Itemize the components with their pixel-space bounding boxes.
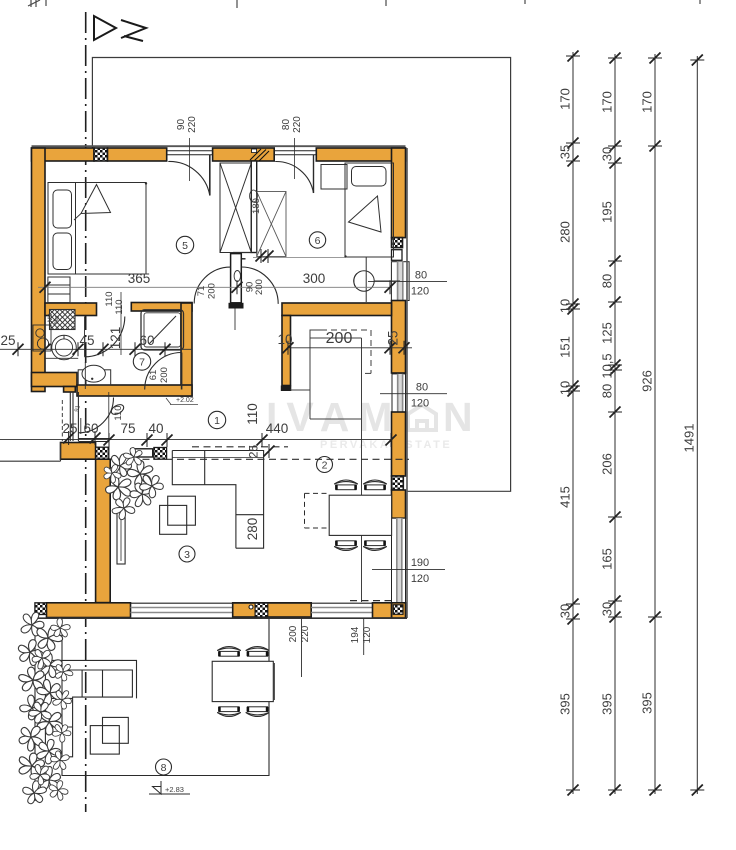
svg-text:25: 25 <box>0 333 15 348</box>
svg-text:395: 395 <box>639 692 654 714</box>
svg-text:80: 80 <box>599 274 614 288</box>
svg-text:195: 195 <box>599 201 614 223</box>
svg-text:80: 80 <box>415 270 427 282</box>
svg-text:206: 206 <box>599 453 614 475</box>
svg-text:10,5: 10,5 <box>599 353 614 378</box>
svg-text:120: 120 <box>411 573 429 585</box>
svg-text:10: 10 <box>557 299 572 313</box>
svg-text:200: 200 <box>326 330 353 347</box>
svg-text:80: 80 <box>599 384 614 398</box>
svg-text:80: 80 <box>281 119 292 131</box>
svg-text:1491: 1491 <box>681 424 696 453</box>
svg-text:280: 280 <box>557 221 572 243</box>
svg-text:440: 440 <box>266 421 289 436</box>
svg-text:10: 10 <box>277 332 292 347</box>
svg-text:220: 220 <box>187 116 198 133</box>
svg-text:110: 110 <box>113 405 124 420</box>
svg-text:90: 90 <box>176 119 187 131</box>
svg-text:75: 75 <box>120 421 135 436</box>
svg-text:170: 170 <box>557 88 572 110</box>
svg-text:120: 120 <box>411 398 429 410</box>
svg-text:N: N <box>443 394 473 440</box>
svg-text:120: 120 <box>362 626 373 643</box>
svg-text:1: 1 <box>214 415 220 427</box>
svg-text:170: 170 <box>599 91 614 113</box>
svg-text:200: 200 <box>254 279 265 295</box>
svg-text:395: 395 <box>599 693 614 715</box>
svg-text:45: 45 <box>79 333 94 348</box>
svg-text:300: 300 <box>303 271 326 286</box>
svg-text:40: 40 <box>148 421 163 436</box>
svg-text:61: 61 <box>148 370 159 381</box>
svg-text:926: 926 <box>639 370 654 392</box>
svg-text:71: 71 <box>196 286 207 297</box>
svg-text:+2.83: +2.83 <box>165 785 184 794</box>
svg-text:395: 395 <box>557 693 572 715</box>
svg-text:280: 280 <box>245 518 260 541</box>
svg-text:170: 170 <box>639 91 654 113</box>
svg-text:80: 80 <box>416 382 428 394</box>
svg-text:3: 3 <box>184 549 190 561</box>
svg-text:200: 200 <box>207 283 218 299</box>
svg-text:60: 60 <box>83 421 98 436</box>
svg-text:+2.02: +2.02 <box>176 397 194 404</box>
svg-text:125: 125 <box>599 322 614 344</box>
svg-text:30: 30 <box>599 147 614 161</box>
svg-text:151: 151 <box>557 336 572 358</box>
svg-text:220: 220 <box>300 625 311 642</box>
svg-text:6: 6 <box>315 235 321 247</box>
svg-text:110: 110 <box>245 403 260 425</box>
svg-text:7: 7 <box>139 357 145 369</box>
svg-text:415: 415 <box>557 486 572 508</box>
svg-text:110: 110 <box>114 299 125 314</box>
svg-text:194: 194 <box>350 626 361 643</box>
svg-text:365: 365 <box>128 271 151 286</box>
svg-text:200: 200 <box>288 625 299 642</box>
svg-text:190: 190 <box>411 557 429 569</box>
svg-text:30: 30 <box>599 602 614 616</box>
svg-text:165: 165 <box>599 548 614 570</box>
svg-text:2: 2 <box>322 459 328 471</box>
svg-text:5: 5 <box>182 240 188 252</box>
svg-text:5kg: 5kg <box>54 316 60 324</box>
svg-text:25: 25 <box>247 445 261 459</box>
svg-text:120: 120 <box>411 286 429 298</box>
svg-text:8: 8 <box>161 762 167 774</box>
svg-text:35: 35 <box>557 145 572 159</box>
svg-text:60: 60 <box>139 333 154 348</box>
svg-text:10: 10 <box>557 381 572 395</box>
svg-text:25: 25 <box>62 421 77 436</box>
svg-text:25: 25 <box>386 330 401 345</box>
svg-text:30: 30 <box>557 604 572 618</box>
svg-text:200: 200 <box>159 367 170 383</box>
svg-text:220: 220 <box>292 116 303 133</box>
